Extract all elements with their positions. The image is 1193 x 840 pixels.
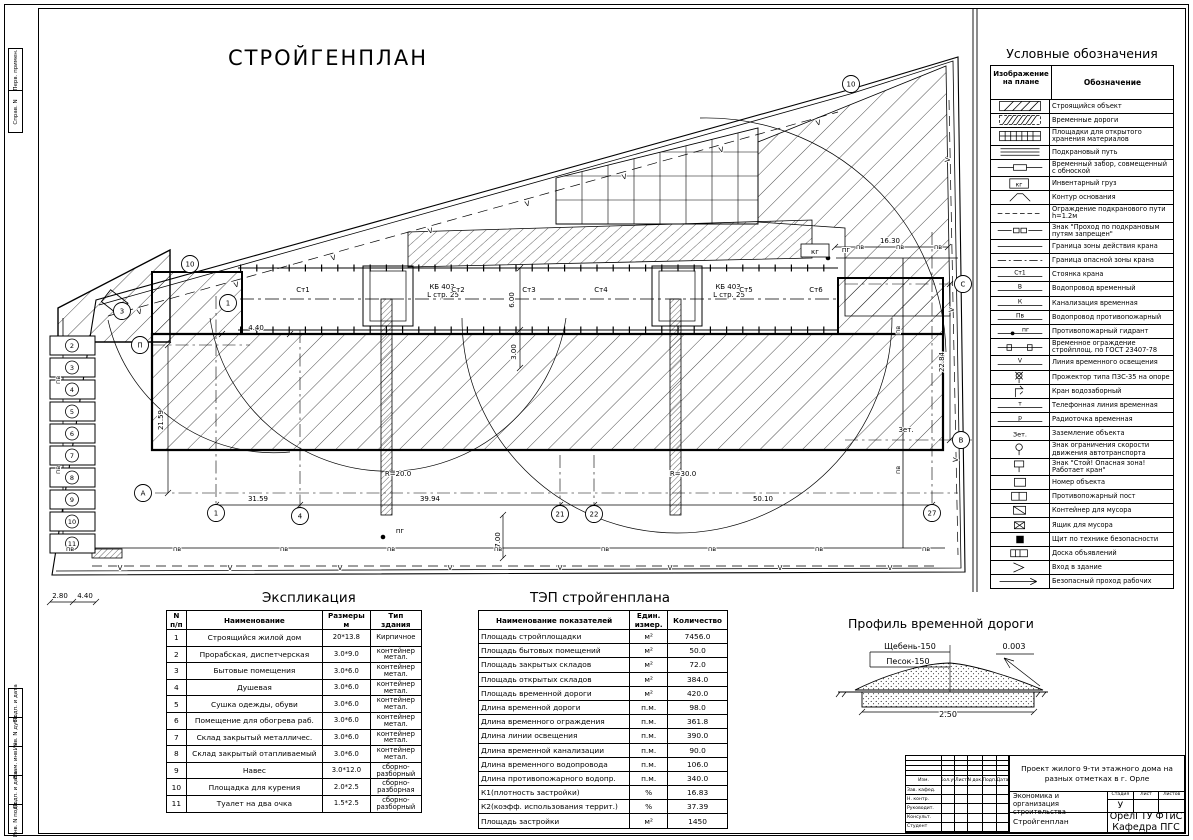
legend-row: пгПротивопожарный гидрант <box>991 325 1173 339</box>
table-cell: Длина временного ограждения <box>479 715 630 729</box>
table-cell: п.м. <box>630 715 668 729</box>
legend-row-label: Подкрановый путь <box>1050 146 1173 159</box>
explication-table: N п/пНаименованиеРазмеры мТип здания1Стр… <box>166 610 422 813</box>
table-cell: % <box>630 786 668 800</box>
title-block-cell: Дата <box>997 776 1009 786</box>
plan-label: 4.40 <box>248 324 264 332</box>
sheets-label: Листов <box>1159 791 1184 799</box>
legend-row-label: Кран водозаборный <box>1050 385 1173 398</box>
table-row: 5Сушка одежды, обуви3.0*6.0контейнер мет… <box>167 696 422 713</box>
legend-row: Доска объявлений <box>991 547 1173 561</box>
table-cell: 3.0*6.0 <box>323 712 371 729</box>
legend-row: Граница опасной зоны крана <box>991 254 1173 268</box>
tep-table: Наименование показателейЕдин. измер.Коли… <box>478 610 728 829</box>
svg-text:Пв: Пв <box>1016 312 1025 319</box>
table-cell: Сушка одежды, обуви <box>186 696 322 713</box>
unit-number: 8 <box>70 474 74 482</box>
title-block-cell <box>997 804 1009 813</box>
lighting-line-mark: V <box>778 564 783 572</box>
table-cell: 1450 <box>668 814 728 828</box>
plan-label: Ст6 <box>809 286 823 294</box>
axis-label: 27 <box>928 510 937 518</box>
table-cell: м² <box>630 814 668 828</box>
table-cell: 1 <box>167 630 187 647</box>
axis-label: 21 <box>556 511 565 519</box>
table-cell: 8 <box>167 746 187 763</box>
title-block-cell <box>955 804 968 813</box>
table-cell: м² <box>630 672 668 686</box>
title-block-cell <box>983 786 997 795</box>
table-cell: Кирпичное <box>370 630 421 647</box>
title-block-cell <box>997 814 1009 823</box>
hydrant-icon <box>381 535 386 540</box>
water-line-mark: пв <box>894 466 902 474</box>
legend-symbol-icon <box>991 575 1050 588</box>
legend-row-label: Безопасный проход рабочих <box>1050 575 1173 588</box>
table-row: Длина временной дорогип.м.98.0 <box>479 700 728 714</box>
table-cell: 384.0 <box>668 672 728 686</box>
legend-row: Зет.Заземление объекта <box>991 427 1173 441</box>
table-row: К2(коэфф. использования террит.)%37.39 <box>479 800 728 814</box>
legend-row-label: Линия временного освещения <box>1050 356 1173 369</box>
table-cell: Длина временного водопровода <box>479 757 630 771</box>
water-line-mark: пв <box>54 466 62 474</box>
water-line-mark: пв <box>894 326 902 334</box>
plan-label: R=30.0 <box>670 470 696 478</box>
lighting-line-mark: V <box>338 564 343 572</box>
table-cell: 361.8 <box>668 715 728 729</box>
profile-label: 0.003 <box>1003 642 1026 651</box>
drawing-sheet: Перв. примен.Справ. N Подп. и датаИнв. N… <box>0 0 1193 840</box>
table-cell: сборно-разборная <box>370 779 421 796</box>
plan-label: пг <box>396 527 405 535</box>
title-block-cell <box>968 823 983 832</box>
legend-row: Безопасный проход рабочих <box>991 575 1173 588</box>
legend-symbol-icon: К <box>991 297 1050 310</box>
unit-number: 3 <box>70 364 74 372</box>
unit-number: 6 <box>70 430 74 438</box>
table-cell: Площадь временной дороги <box>479 686 630 700</box>
table-cell: сборно-разборный <box>370 795 421 812</box>
table-row: 2Прорабская, диспетчерская3.0*9.0контейн… <box>167 646 422 663</box>
plan-label: 22.84 <box>938 351 946 372</box>
table-cell: Бытовые помещения <box>186 663 322 680</box>
lighting-line-mark: V <box>718 146 725 155</box>
axis-label: 4 <box>298 513 303 521</box>
water-line-mark: пв <box>896 243 904 251</box>
table-row: Площадь бытовых помещенийм²50.0 <box>479 644 728 658</box>
table-cell: Навес <box>186 762 322 779</box>
lighting-line-mark: V <box>330 254 337 263</box>
table-cell: 5 <box>167 696 187 713</box>
svg-text:Зет.: Зет. <box>1013 431 1027 439</box>
legend-symbol-icon <box>991 339 1050 355</box>
table-row: 10Площадка для курения2.0*2.5сборно-разб… <box>167 779 422 796</box>
title-block-cell: Руководит. <box>906 804 942 813</box>
legend-row-label: Контейнер для мусора <box>1050 504 1173 517</box>
legend-row: Знак "Стой! Опасная зона! Работает кран" <box>991 459 1173 476</box>
table-row: Длина временного водопроводап.м.106.0 <box>479 757 728 771</box>
table-cell: п.м. <box>630 757 668 771</box>
svg-text:В: В <box>1018 284 1022 291</box>
table-cell: контейнер метал. <box>370 679 421 696</box>
profile-label: 2.50 <box>939 710 957 719</box>
title-block-cell: Кол.уч <box>942 776 955 786</box>
legend-symbol-icon: Пв <box>991 311 1050 324</box>
table-cell: 98.0 <box>668 700 728 714</box>
water-line-mark: пв <box>856 243 864 251</box>
table-cell: Душевая <box>186 679 322 696</box>
legend-row: ККанализация временная <box>991 297 1173 311</box>
table-cell: 3.0*6.0 <box>323 746 371 763</box>
table-cell: п.м. <box>630 743 668 757</box>
title-block-cell <box>942 804 955 813</box>
table-cell: 3 <box>167 663 187 680</box>
table-cell: 9 <box>167 762 187 779</box>
table-cell: контейнер метал. <box>370 712 421 729</box>
title-block-cell: N док. <box>968 776 983 786</box>
table-cell: К1(плотность застройки) <box>479 786 630 800</box>
table-cell: Длина противопожарного водопр. <box>479 771 630 785</box>
legend-row-label: Граница опасной зоны крана <box>1050 254 1173 267</box>
plan-label: 3.00 <box>510 344 518 360</box>
lighting-line-mark: V <box>948 307 956 313</box>
plan-label: 39.94 <box>420 495 441 503</box>
title-block-cell <box>968 786 983 795</box>
legend-row: Временное ограждение стройплощ. по ГОСТ … <box>991 339 1173 356</box>
table-cell: 3.0*6.0 <box>323 729 371 746</box>
road-profile-drawing <box>836 645 1048 715</box>
legend-row-label: Доска объявлений <box>1050 547 1173 560</box>
unit-number: 9 <box>70 496 74 504</box>
table-cell: 3.0*6.0 <box>323 679 371 696</box>
legend-row-label: Временное ограждение стройплощ. по ГОСТ … <box>1050 339 1173 355</box>
document-name: Стройгенплан <box>1010 813 1107 832</box>
table-cell: 20*13.8 <box>323 630 371 647</box>
legend-row: Противопожарный пост <box>991 490 1173 504</box>
legend-symbol-icon <box>991 561 1050 574</box>
plan-label: Ст2 <box>451 286 464 294</box>
table-row: Длина линии освещенияп.м.390.0 <box>479 729 728 743</box>
table-row: 9Навес3.0*12.0сборно-разборный <box>167 762 422 779</box>
legend-row-label: Телефонная линия временная <box>1050 399 1173 412</box>
water-line-mark: пв <box>601 545 609 553</box>
column-header: Наименование показателей <box>479 611 630 630</box>
table-cell: контейнер метал. <box>370 729 421 746</box>
plan-label: Зет. <box>898 426 913 434</box>
legend-symbol-icon <box>991 371 1050 384</box>
legend-col-meaning: Обозначение <box>1052 66 1173 99</box>
table-cell: Длина временной дороги <box>479 700 630 714</box>
unit-number: 4 <box>70 386 74 394</box>
legend-row-label: Ящик для мусора <box>1050 518 1173 531</box>
legend-row: Подкрановый путь <box>991 146 1173 160</box>
axis-label: 10 <box>847 81 856 89</box>
legend-row-label: Площадки для открытого хранения материал… <box>1050 128 1173 144</box>
plan-label: 6.00 <box>508 292 516 308</box>
table-cell: контейнер метал. <box>370 696 421 713</box>
unit-number: 7 <box>70 452 74 460</box>
table-cell: 2 <box>167 646 187 663</box>
tep-title: ТЭП стройгенплана <box>530 590 670 606</box>
table-row: 3Бытовые помещения3.0*6.0контейнер метал… <box>167 663 422 680</box>
legend-row-label: Строящийся объект <box>1050 100 1173 113</box>
legend-row: Вход в здание <box>991 561 1173 575</box>
legend-symbol-icon: В <box>991 282 1050 295</box>
legend-row: Знак ограничения скорости движения автот… <box>991 441 1173 458</box>
legend-row-label: Знак "Проход по подкрановым путям запрещ… <box>1050 223 1173 239</box>
lighting-line-mark: V <box>668 564 673 572</box>
table-cell: 50.0 <box>668 644 728 658</box>
table-row: Площадь закрытых складовм²72.0 <box>479 658 728 672</box>
table-cell: 106.0 <box>668 757 728 771</box>
table-row: 7Склад закрытый металличес.3.0*6.0контей… <box>167 729 422 746</box>
plan-label: Ст1 <box>296 286 309 294</box>
table-cell: Строящийся жилой дом <box>186 630 322 647</box>
legend-row: ВВодопровод временный <box>991 282 1173 296</box>
column-header: Размеры м <box>323 611 371 630</box>
axis-label: 10 <box>186 261 195 269</box>
legend-row: Ограждение подкранового пути h=1.2м <box>991 205 1173 222</box>
table-cell: контейнер метал. <box>370 663 421 680</box>
legend-row: Строящийся объект <box>991 100 1173 114</box>
unit-number: 2 <box>70 342 74 350</box>
plan-label: пг <box>842 246 851 254</box>
table-cell: контейнер метал. <box>370 646 421 663</box>
legend-row-label: Канализация временная <box>1050 297 1173 310</box>
legend-symbol-icon <box>991 441 1050 457</box>
legend-row: ПвВодопровод противопожарный <box>991 311 1173 325</box>
water-line-mark: пв <box>54 376 62 384</box>
legend-row: Временные дороги <box>991 114 1173 128</box>
title-block-cell: Консульт. <box>906 814 942 823</box>
legend-row-label: Радиоточка временная <box>1050 413 1173 426</box>
title-block-cell <box>955 795 968 804</box>
table-cell: 7 <box>167 729 187 746</box>
legend-symbol-icon: пг <box>991 325 1050 338</box>
legend-table: Изображение на плане Обозначение Строящи… <box>990 65 1174 589</box>
legend-row: кгИнвентарный груз <box>991 177 1173 191</box>
svg-text:т: т <box>1018 401 1022 408</box>
title-block-cell <box>942 795 955 804</box>
temp-road-band <box>408 220 812 267</box>
legend-symbol-icon <box>991 205 1050 221</box>
svg-text:кг: кг <box>1016 181 1023 188</box>
table-cell: сборно-разборный <box>370 762 421 779</box>
title-block-cell: Н. контр. <box>906 795 942 804</box>
table-cell: % <box>630 800 668 814</box>
legend-row-label: Инвентарный груз <box>1050 177 1173 190</box>
table-cell: 16.83 <box>668 786 728 800</box>
plan-label: Ст4 <box>594 286 608 294</box>
legend-symbol-icon <box>991 459 1050 475</box>
legend-row-label: Ограждение подкранового пути h=1.2м <box>1050 205 1173 221</box>
title-block-cell <box>942 823 955 832</box>
plan-label: R=20.0 <box>385 470 411 478</box>
table-cell: 340.0 <box>668 771 728 785</box>
table-cell: 4 <box>167 679 187 696</box>
lighting-line-mark: V <box>944 157 952 163</box>
column-header: Наименование <box>186 611 322 630</box>
svg-text:V: V <box>1018 358 1023 365</box>
table-cell: Прорабская, диспетчерская <box>186 646 322 663</box>
table-cell: 10 <box>167 779 187 796</box>
legend-symbol-icon <box>991 518 1050 531</box>
table-cell: 420.0 <box>668 686 728 700</box>
legend-row: Площадки для открытого хранения материал… <box>991 128 1173 145</box>
legend-row-label: Щит по технике безопасности <box>1050 533 1173 546</box>
svg-text:К: К <box>1018 298 1023 305</box>
water-line-mark: пв <box>66 545 74 553</box>
lighting-line-mark: V <box>448 564 453 572</box>
title-block-cell <box>942 814 955 823</box>
legend-row: Прожектор типа ПЗС-35 на опоре <box>991 371 1173 385</box>
stage-block: Стадия Лист Листов У <box>1107 791 1184 813</box>
water-line-mark: пв <box>387 545 395 553</box>
table-cell: Площадь бытовых помещений <box>479 644 630 658</box>
plan-label: Ст3 <box>522 286 535 294</box>
table-cell: м² <box>630 686 668 700</box>
table-row: Площадь открытых складовм²384.0 <box>479 672 728 686</box>
legend-row: Контейнер для мусора <box>991 504 1173 518</box>
table-row: Площадь застройким²1450 <box>479 814 728 828</box>
table-cell: 72.0 <box>668 658 728 672</box>
legend-row-label: Номер объекта <box>1050 476 1173 489</box>
legend-symbol-icon <box>991 254 1050 267</box>
table-cell: Площадь открытых складов <box>479 672 630 686</box>
crane-rails <box>238 268 838 330</box>
water-line-mark: пв <box>173 545 181 553</box>
unit-number: 5 <box>70 408 74 416</box>
plan-label: 4.40 <box>77 592 93 600</box>
legend-symbol-icon <box>991 385 1050 398</box>
table-row: К1(плотность застройки)%16.83 <box>479 786 728 800</box>
legend-symbol-icon <box>991 476 1050 489</box>
table-row: 8Склад закрытый отапливаемый3.0*6.0конте… <box>167 746 422 763</box>
title-block-cell <box>968 795 983 804</box>
table-cell: 90.0 <box>668 743 728 757</box>
table-row: 4Душевая3.0*6.0контейнер метал. <box>167 679 422 696</box>
axis-label: С <box>961 281 966 289</box>
table-cell: м² <box>630 630 668 644</box>
road-profile-title: Профиль временной дороги <box>848 616 1034 631</box>
lighting-line-mark: V <box>118 564 123 572</box>
water-line-mark: пв <box>922 545 930 553</box>
legend-row: Щит по технике безопасности <box>991 533 1173 547</box>
title-block-cell <box>997 786 1009 795</box>
legend-symbol-icon <box>991 114 1050 127</box>
stage-label: Стадия <box>1108 791 1134 799</box>
svg-text:р: р <box>1018 415 1022 422</box>
legend-row: VЛиния временного освещения <box>991 356 1173 370</box>
title-block-cell <box>968 804 983 813</box>
axis-label: П <box>137 342 142 350</box>
profile-label: Щебень-150 <box>884 642 936 651</box>
table-cell: 2.0*2.5 <box>323 779 371 796</box>
table-row: Длина временного огражденияп.м.361.8 <box>479 715 728 729</box>
table-cell: 6 <box>167 712 187 729</box>
table-cell: п.м. <box>630 771 668 785</box>
axis-label: 1 <box>214 510 218 518</box>
subject-name: Экономика и организация строительства <box>1010 791 1107 813</box>
water-line-mark: пв <box>280 545 288 553</box>
table-cell: Длина линии освещения <box>479 729 630 743</box>
plan-legend-divider <box>973 8 977 592</box>
table-cell: контейнер метал. <box>370 746 421 763</box>
legend-symbol-icon <box>991 223 1050 239</box>
legend-row-label: Водопровод противопожарный <box>1050 311 1173 324</box>
legend-panel: Условные обозначения Изображение на план… <box>990 46 1174 589</box>
legend-row-label: Противопожарный пост <box>1050 490 1173 503</box>
legend-symbol-icon <box>991 490 1050 503</box>
lighting-line-mark: V <box>228 564 233 572</box>
title-block-cell <box>968 814 983 823</box>
axis-label: А <box>141 490 146 498</box>
plan-label: Ст5 <box>739 286 752 294</box>
sheet-label: Лист <box>1134 791 1160 799</box>
table-cell: Склад закрытый отапливаемый <box>186 746 322 763</box>
table-cell: 3.0*9.0 <box>323 646 371 663</box>
table-cell: 7456.0 <box>668 630 728 644</box>
water-line-mark: пв <box>815 545 823 553</box>
axis-label: 1 <box>226 300 230 308</box>
legend-symbol-icon <box>991 146 1050 159</box>
legend-row: Номер объекта <box>991 476 1173 490</box>
title-block-cell <box>983 804 997 813</box>
unit-number: 10 <box>68 518 76 526</box>
column-header: N п/п <box>167 611 187 630</box>
table-cell: 11 <box>167 795 187 812</box>
legend-row-label: Временный забор, совмещенный с обноской <box>1050 160 1173 176</box>
legend-row: Временный забор, совмещенный с обноской <box>991 160 1173 177</box>
legend-symbol-icon: кг <box>991 177 1050 190</box>
legend-row-label: Стоянка крана <box>1050 268 1173 281</box>
legend-row: Знак "Проход по подкрановым путям запрещ… <box>991 223 1173 240</box>
legend-header: Изображение на плане Обозначение <box>991 66 1173 100</box>
title-block: Изм.Кол.учЛистN док.Подп.ДатаЗав. кафед.… <box>905 755 1185 833</box>
title-block-cell <box>955 814 968 823</box>
legend-symbol-icon <box>991 128 1050 144</box>
water-line-mark: пв <box>708 545 716 553</box>
profile-label: Песок-150 <box>886 657 929 666</box>
legend-symbol-icon: V <box>991 356 1050 369</box>
small-hatched-pad <box>92 549 122 558</box>
table-cell: Площадь застройки <box>479 814 630 828</box>
table-row: 11Туалет на два очка1.5*2.5сборно-разбор… <box>167 795 422 812</box>
legend-row: тТелефонная линия временная <box>991 399 1173 413</box>
organization-name: ОрелГТУ ФТиС Кафедра ПГС <box>1107 813 1184 832</box>
column-header: Един. измер. <box>630 611 668 630</box>
title-block-cell <box>997 795 1009 804</box>
legend-row: Контур основания <box>991 191 1173 205</box>
table-cell: К2(коэфф. использования террит.) <box>479 800 630 814</box>
legend-symbol-icon <box>991 160 1050 176</box>
explication-title: Экспликация <box>262 590 356 606</box>
column-header: Количество <box>668 611 728 630</box>
title-block-revision-grid: Изм.Кол.учЛистN док.Подп.ДатаЗав. кафед.… <box>906 756 1009 831</box>
legend-row: Кран водозаборный <box>991 385 1173 399</box>
title-block-cell <box>983 814 997 823</box>
title-block-cell: Студент <box>906 823 942 832</box>
lighting-line-mark: V <box>888 564 893 572</box>
legend-row-label: Противопожарный гидрант <box>1050 325 1173 338</box>
page-title: СТРОЙГЕНПЛАН <box>228 46 428 70</box>
title-block-cell <box>983 823 997 832</box>
table-cell: п.м. <box>630 700 668 714</box>
title-block-cell <box>983 795 997 804</box>
legend-title: Условные обозначения <box>990 46 1174 61</box>
table-row: Площадь временной дорогим²420.0 <box>479 686 728 700</box>
